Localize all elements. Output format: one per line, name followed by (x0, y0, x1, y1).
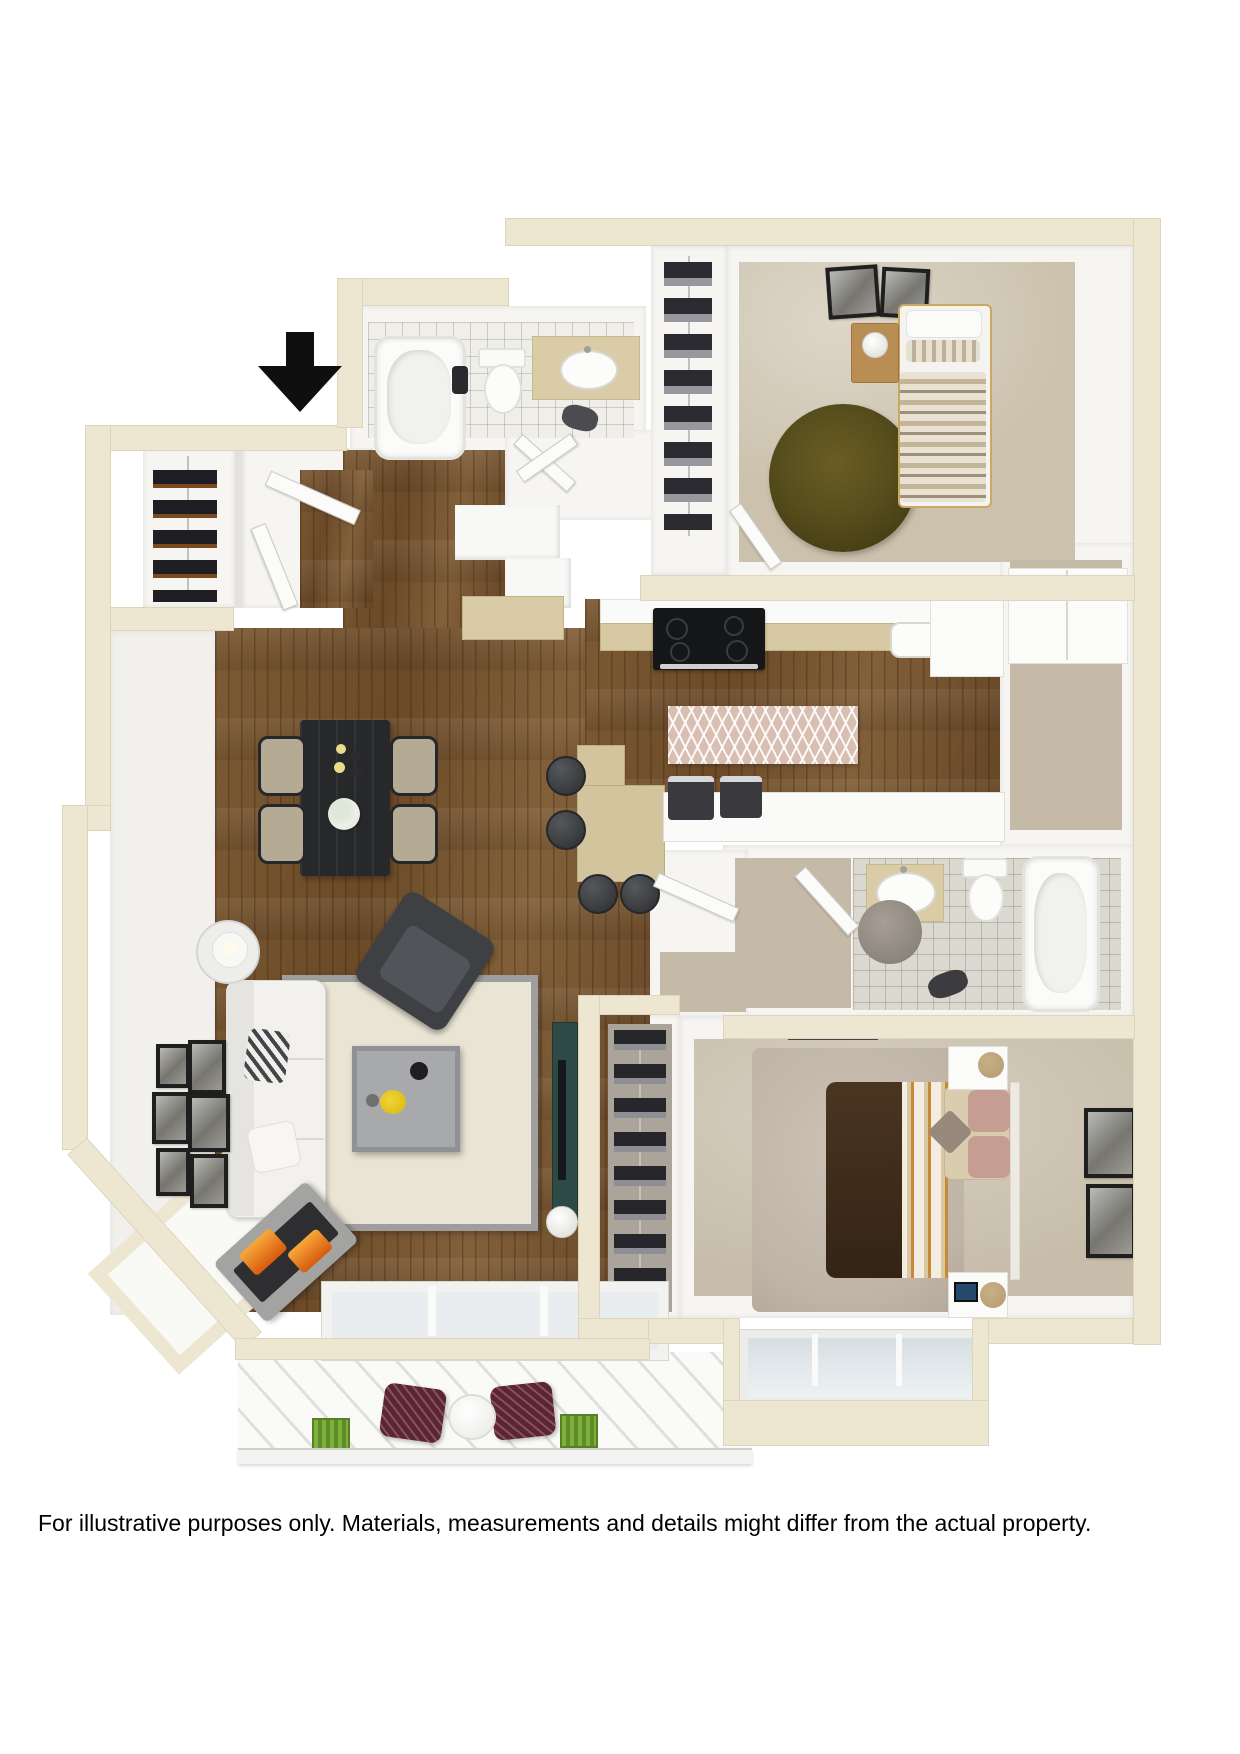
breakfast-bar (577, 785, 665, 882)
pass-through-wall (455, 505, 560, 560)
bed-pillow-striped (906, 340, 980, 362)
toilet-bowl (968, 874, 1004, 922)
bathtub-basin (387, 350, 451, 444)
flower-vase (328, 798, 360, 830)
patio-chair (489, 1381, 556, 1441)
shoe-shelves (614, 1030, 666, 1306)
bathtub (374, 336, 466, 460)
range-stove (653, 608, 765, 670)
wall (235, 1338, 650, 1360)
bath-2-vestibule-carpet (735, 858, 851, 1008)
wall (723, 1400, 989, 1446)
planter-box (312, 1418, 350, 1452)
wine-rack (153, 470, 217, 602)
tv-screen (558, 1060, 566, 1180)
wall (723, 1015, 1135, 1039)
sliding-door-mullion (540, 1286, 548, 1336)
queen-bed-duvet (826, 1082, 902, 1278)
gallery-frame (152, 1092, 190, 1144)
entry-arrow-head-icon (258, 366, 342, 412)
bed-pillow-mauve (968, 1136, 1010, 1178)
closet-clothes (664, 262, 712, 530)
striped-throw-pillow (243, 1027, 292, 1084)
bar-stool (620, 874, 660, 914)
floor-lamp (546, 1206, 578, 1238)
stove-burner (670, 642, 690, 662)
basket (978, 1052, 1004, 1078)
wall (505, 218, 1161, 246)
table-bowl (410, 1062, 428, 1080)
wall (85, 425, 111, 825)
gallery-frame (156, 1044, 190, 1088)
basket (980, 1282, 1006, 1308)
white-throw-pillow (246, 1120, 303, 1175)
candle (351, 751, 361, 761)
bar-stool (546, 756, 586, 796)
stove-burner (666, 618, 688, 640)
wall (972, 1318, 1133, 1344)
wall (62, 805, 88, 1150)
candle (352, 766, 362, 776)
yellow-flowers (380, 1090, 406, 1114)
floor-plan-page: For illustrative purposes only. Material… (0, 0, 1240, 1754)
vanity-sink (560, 350, 618, 390)
wall (110, 607, 234, 631)
wall (85, 425, 347, 451)
pass-through-base (462, 596, 564, 640)
sliding-door-mullion (428, 1286, 436, 1336)
gallery-frame (188, 1094, 230, 1152)
faucet-icon (900, 866, 907, 873)
wall-art-frame (1084, 1108, 1136, 1178)
faucet-icon (584, 346, 591, 353)
window-mullion (896, 1334, 902, 1386)
peninsula-counter (663, 792, 1005, 842)
planter-box (560, 1414, 598, 1448)
patio-table (448, 1394, 496, 1440)
stove-burner (726, 640, 748, 662)
patio-chair (379, 1382, 448, 1444)
bar-stool (578, 874, 618, 914)
wall (578, 995, 600, 1344)
bed-pillow-mauve (968, 1090, 1010, 1132)
gallery-frame (188, 1040, 226, 1094)
master-window (740, 1330, 988, 1406)
toilet-bowl (484, 364, 522, 414)
photo-on-nightstand (954, 1282, 978, 1302)
entry-arrow-icon (286, 332, 314, 368)
wall (1133, 218, 1161, 1345)
headboard (1010, 1082, 1020, 1280)
stove-burner (724, 616, 744, 636)
nightstand-lamp (862, 332, 888, 358)
gallery-frame (156, 1148, 190, 1196)
queen-bed-striped-sheet (902, 1082, 948, 1278)
dining-chair (390, 736, 438, 796)
striped-blanket (900, 372, 986, 502)
dining-chair (258, 736, 306, 796)
dining-chair (258, 804, 306, 864)
dining-chair (390, 804, 438, 864)
closet-partition (235, 448, 243, 608)
round-bath-rug (858, 900, 922, 964)
balcony-railing (238, 1448, 752, 1464)
bathtub-2-basin (1034, 873, 1087, 993)
towel (452, 366, 468, 394)
candle (334, 762, 345, 773)
window-mullion (812, 1334, 818, 1386)
gallery-frame (190, 1154, 228, 1208)
bed-pillow (906, 310, 982, 338)
wall-art-frame (825, 264, 881, 320)
candle (336, 744, 346, 754)
disclaimer-text: For illustrative purposes only. Material… (38, 1510, 1208, 1537)
countertop-appliance (720, 776, 762, 818)
wall (640, 575, 1135, 601)
wall-art-frame (1086, 1184, 1136, 1258)
stove-handle (660, 664, 758, 669)
sofa-back (226, 980, 254, 1216)
bathtub-2 (1022, 856, 1100, 1012)
bar-stool (546, 810, 586, 850)
round-olive-rug (769, 404, 917, 552)
lamp-glow (222, 940, 238, 956)
table-cup (366, 1094, 379, 1107)
chevron-runner-rug (668, 706, 858, 764)
countertop-appliance (668, 776, 714, 820)
